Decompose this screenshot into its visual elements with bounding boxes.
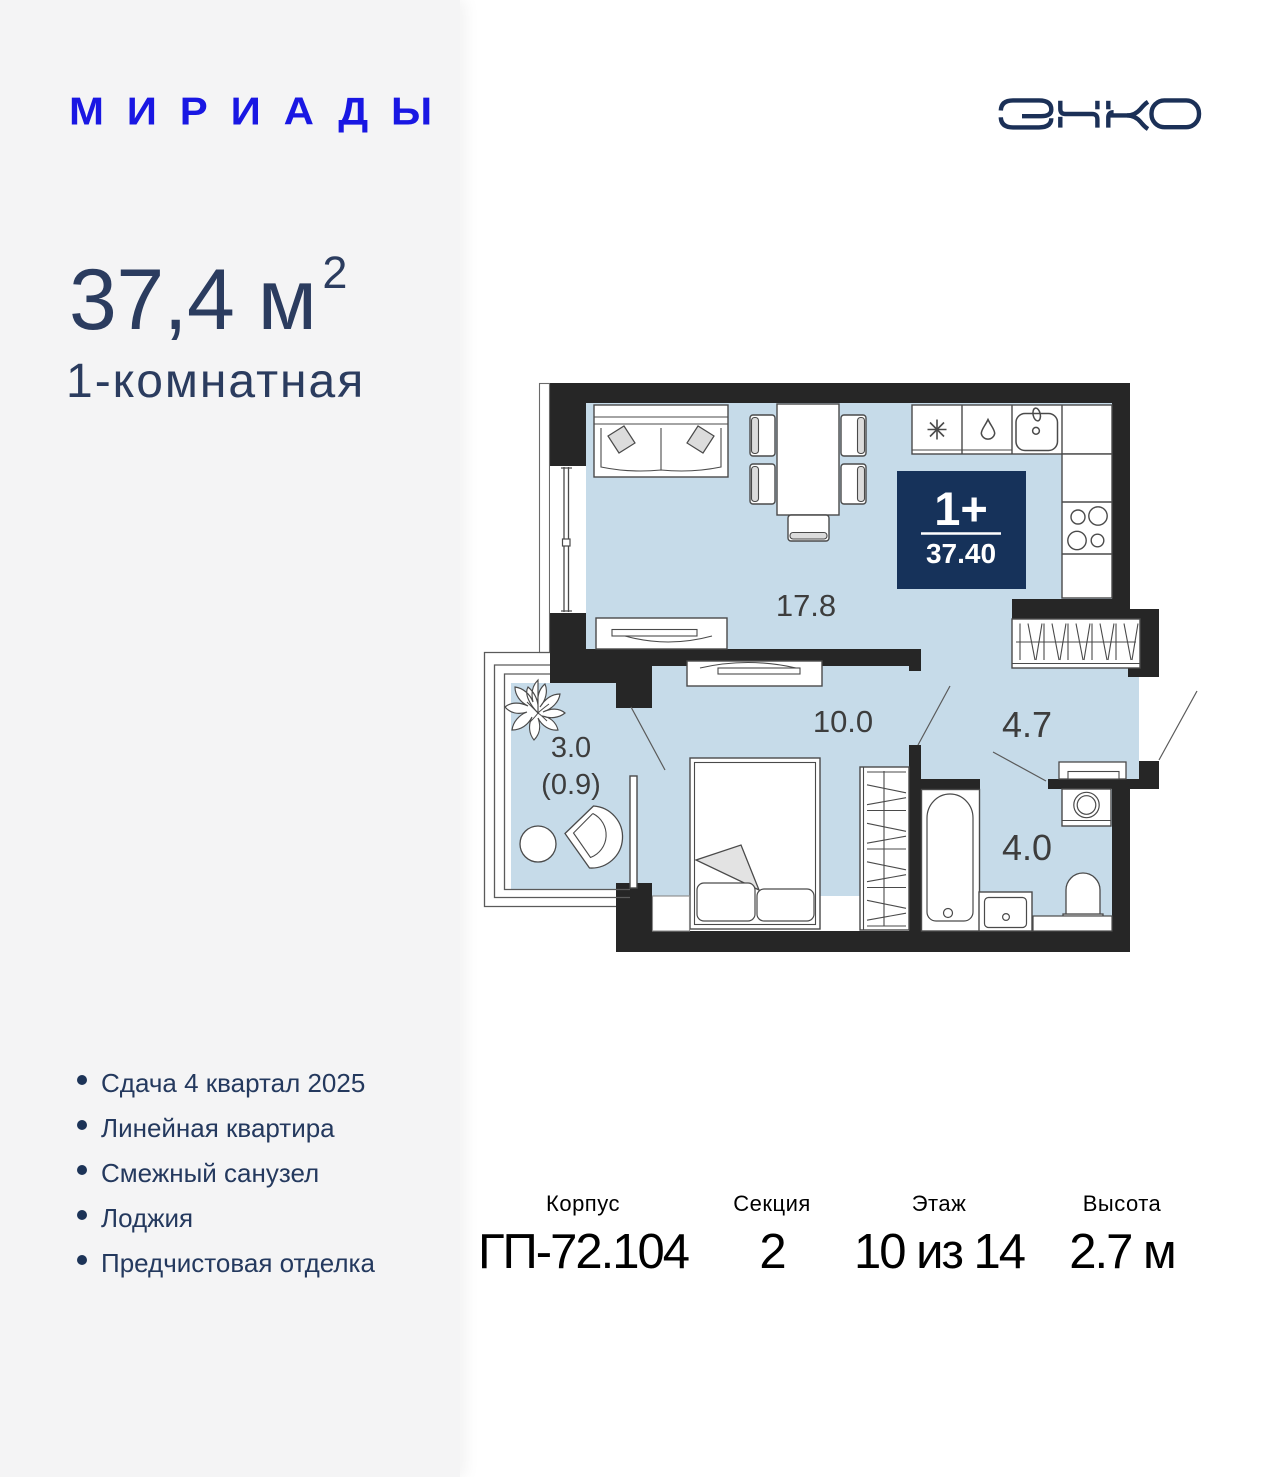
svg-text:4.7: 4.7	[1002, 704, 1052, 745]
svg-text:37.40: 37.40	[926, 538, 996, 569]
svg-text:10.0: 10.0	[813, 704, 873, 739]
svg-text:1+: 1+	[934, 482, 988, 535]
svg-text:(0.9): (0.9)	[541, 769, 601, 801]
svg-text:17.8: 17.8	[776, 588, 836, 623]
svg-text:4.0: 4.0	[1002, 827, 1052, 868]
svg-text:3.0: 3.0	[551, 732, 591, 764]
